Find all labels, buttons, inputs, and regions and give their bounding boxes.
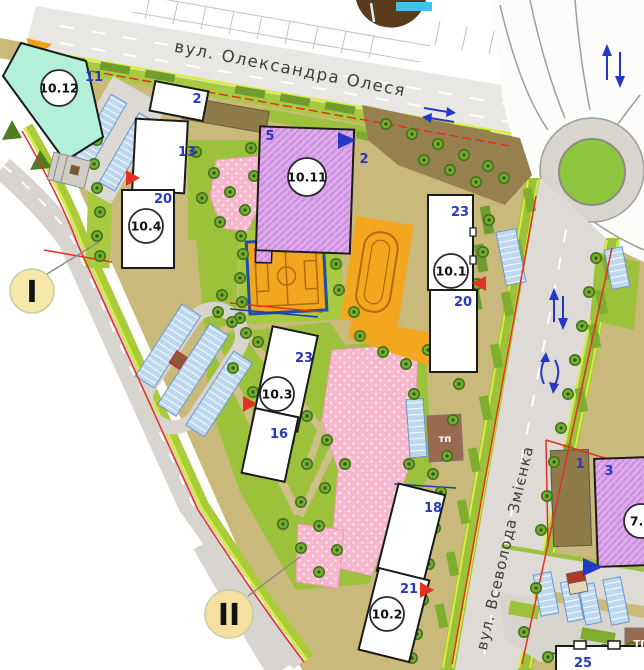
floors-10-11-b: 2 xyxy=(359,152,368,167)
floors-10-2-b: 21 xyxy=(400,582,418,597)
building-10-12-id: 10.12 xyxy=(39,81,79,96)
building-10-2-id: 10.2 xyxy=(372,607,403,622)
building-10-1-id: 10.1 xyxy=(436,264,467,279)
substation-label: тп xyxy=(439,434,452,445)
building-7-1-id: 7.1 xyxy=(630,514,644,529)
floors-7-1: 3 xyxy=(604,464,613,479)
zone2-label: II xyxy=(218,598,240,633)
floors-annex: 1 xyxy=(575,457,584,472)
floors-10-4-c: 20 xyxy=(154,192,172,207)
floors-10-4-b: 13 xyxy=(178,145,196,160)
roundabout-center-lawn xyxy=(559,139,625,205)
building-10-3-id: 10.3 xyxy=(262,387,293,402)
floors-10-12: 11 xyxy=(85,70,103,85)
floors-10-11-a: 5 xyxy=(265,129,274,144)
zone1-label: I xyxy=(26,275,37,310)
building-10-11-id: 10.11 xyxy=(287,170,327,185)
parking4[interactable] xyxy=(406,399,427,458)
floors-10-1-b: 20 xyxy=(454,295,472,310)
site-plan-svg: I II вул. Олександра Олеся вул. Всеволод… xyxy=(0,0,644,670)
floors-10-2-a: 18 xyxy=(424,501,442,516)
floors-10-3-b: 16 xyxy=(270,427,288,442)
building-10-4-id: 10.4 xyxy=(131,219,162,234)
logo-cyan-bar-icon xyxy=(396,2,432,11)
playground-3 xyxy=(296,524,344,588)
building-25[interactable] xyxy=(556,641,644,670)
floors-10-1-a: 23 xyxy=(451,205,469,220)
substation-edge-label: ТП xyxy=(633,639,644,650)
floors-25: 25 xyxy=(574,656,592,670)
floors-10-4-a: 2 xyxy=(192,92,201,107)
site-plan-map: I II вул. Олександра Олеся вул. Всеволод… xyxy=(0,0,644,670)
floors-10-3-a: 23 xyxy=(295,351,313,366)
